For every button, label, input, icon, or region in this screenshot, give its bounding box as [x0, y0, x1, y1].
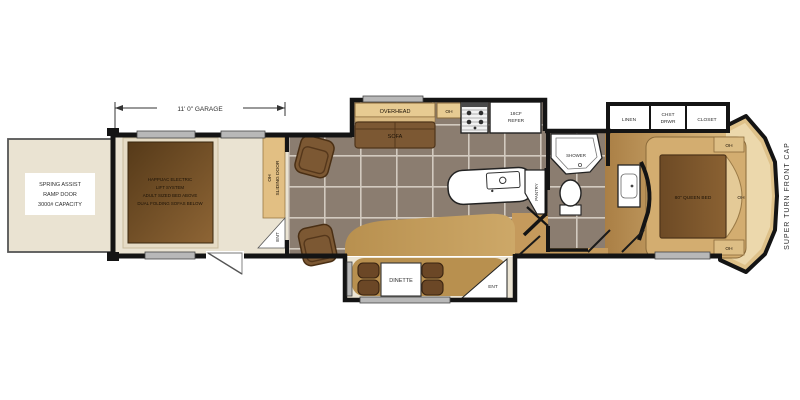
bedroom-oh-right-label: OH	[737, 195, 745, 201]
dimension-arrow-right	[277, 105, 285, 111]
floorplan-page: SPRING ASSIST RAMP DOOR 3000# CAPACITY 1…	[0, 0, 800, 400]
island-sink	[486, 171, 520, 189]
burner-2	[479, 111, 484, 116]
bedroom-slide: LINEN CHST DRWR CLOSET	[608, 104, 728, 131]
closet-label: CLOSET	[697, 117, 716, 123]
burner-center	[474, 127, 477, 130]
chest-label-line2: DRWR	[661, 119, 676, 125]
ramp-door-label-line2: RAMP DOOR	[43, 192, 77, 198]
linen-label: LINEN	[622, 117, 637, 123]
burner-1	[467, 111, 472, 116]
overhead-cabinet-face	[355, 117, 435, 122]
dinette-side-window	[347, 262, 352, 296]
floorplan-canvas: SPRING ASSIST RAMP DOOR 3000# CAPACITY 1…	[0, 0, 800, 400]
lift-bed-label-line2: LIFT SYSTEM	[156, 185, 185, 190]
refrigerator: 18CF REFER	[490, 102, 541, 133]
dimension-arrow-left	[115, 105, 123, 111]
ramp-door-label-line1: SPRING ASSIST	[39, 182, 82, 188]
range-control-panel	[461, 102, 488, 107]
garage-top-window-2	[221, 131, 265, 138]
garage-bottom-window	[145, 252, 195, 259]
rear-corner-top	[107, 128, 119, 136]
dinette-chair-3	[422, 263, 443, 278]
sofa-label: SOFA	[388, 134, 403, 140]
bedroom-bottom-window	[655, 252, 710, 259]
burner-4	[479, 120, 484, 125]
dinette-chair-1	[358, 263, 379, 278]
sofa-slide-window	[363, 96, 423, 102]
recliner-chair-bottom	[297, 223, 338, 267]
garage-side-door	[206, 251, 244, 274]
lift-bed-label-line4: DUAL FOLDING SOFAS BELOW	[137, 201, 203, 206]
lift-bed-label-line1: HAPPIJAC ELECTRIC	[148, 177, 192, 182]
lift-bed-label-line3: ADULT SIZED BED ABOVE	[143, 193, 198, 198]
refrigerator-body	[490, 102, 541, 133]
dinette-chair-4	[422, 280, 443, 295]
front-cap-label: SUPER TURN FRONT CAP	[784, 142, 791, 250]
vanity	[618, 165, 640, 207]
ramp-door-label-line3: 3000# CAPACITY	[38, 202, 82, 208]
dinette-bottom-window	[360, 297, 450, 303]
queen-bed-label: 80" QUEEN BED	[675, 195, 712, 201]
sliding-door-oh-label: OH	[267, 174, 273, 182]
shower-label: SHOWER	[566, 153, 586, 158]
refer-label-line2: REFER	[508, 118, 525, 124]
chest-label-line1: CHST	[661, 112, 674, 118]
garage-top-window-1	[137, 131, 195, 138]
vanity-faucet	[631, 185, 634, 188]
sliding-door-label: SLIDING DOOR	[275, 160, 281, 195]
pantry-label: PANTRY	[534, 183, 539, 200]
sliding-door-panel	[263, 137, 285, 218]
kitchen-island	[447, 167, 535, 205]
burner-3	[467, 120, 472, 125]
range-stove	[461, 102, 488, 133]
sofa-unit: OVERHEAD SOFA	[355, 103, 435, 148]
dimension-label: 11' 0" GARAGE	[177, 106, 223, 113]
overhead-label: OVERHEAD	[380, 109, 411, 115]
refer-label-line1: 18CF	[510, 111, 522, 117]
dinette-label: DINETTE	[389, 278, 413, 284]
garage-lift-bed: HAPPIJAC ELECTRIC LIFT SYSTEM ADULT SIZE…	[123, 138, 218, 248]
main-entry-label: ENT	[488, 284, 498, 290]
toilet	[560, 180, 581, 206]
bedroom-oh-top-label: OH	[725, 143, 733, 149]
bedroom: OH OH OH 80" QUEEN BED	[646, 137, 746, 258]
kitchen-oh-label: OH	[445, 109, 453, 115]
bedroom-oh-bottom-label: OH	[725, 246, 733, 252]
garage-ent-label: ENT	[275, 232, 281, 242]
ramp-door: SPRING ASSIST RAMP DOOR 3000# CAPACITY	[8, 139, 112, 252]
dinette-chair-2	[358, 280, 379, 295]
